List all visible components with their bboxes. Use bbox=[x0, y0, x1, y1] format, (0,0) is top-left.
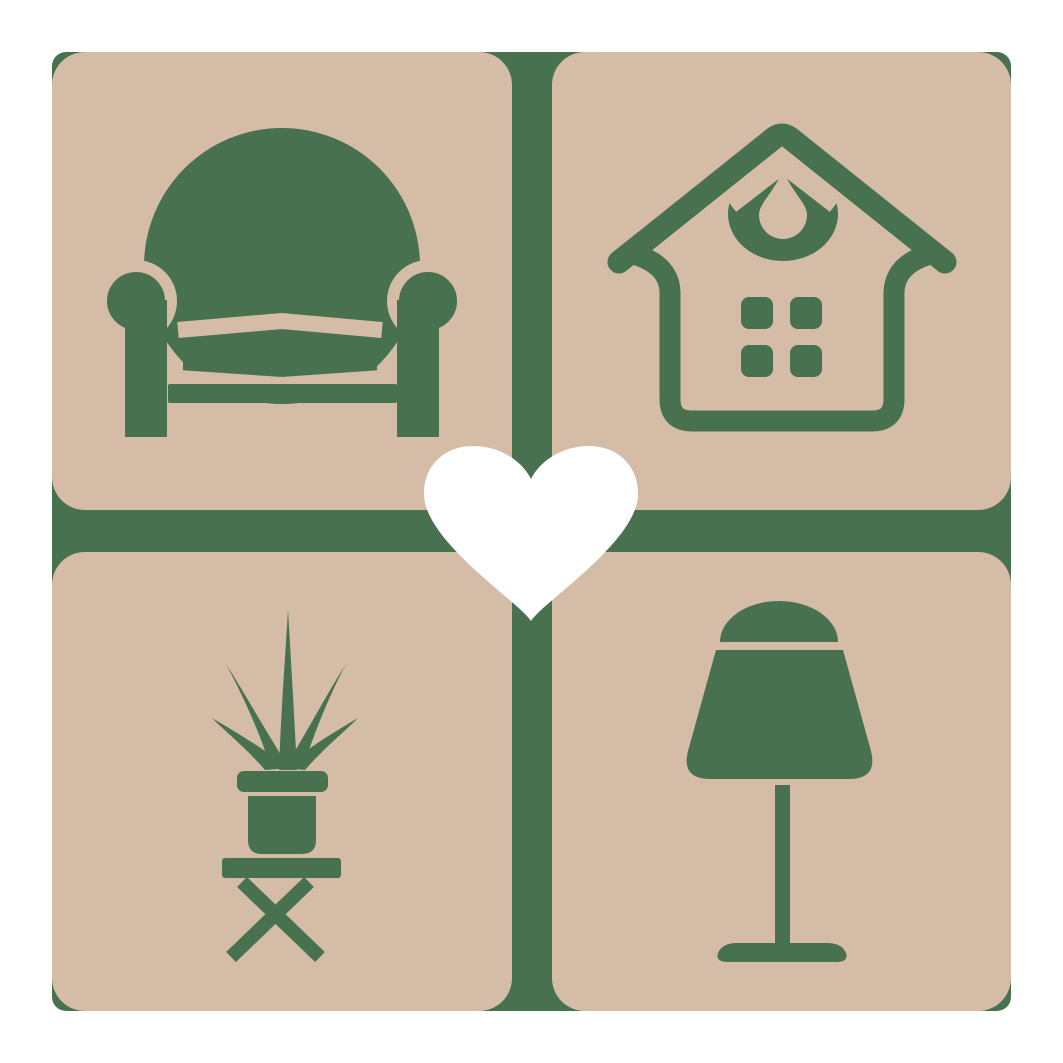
plant-pot-body bbox=[248, 796, 316, 854]
lamp-stem bbox=[775, 785, 790, 946]
chair-seat-seam-top bbox=[178, 321, 382, 330]
chair-seat-seam-bottom bbox=[178, 377, 382, 384]
logo-canvas bbox=[0, 0, 1063, 1063]
tile-house-background bbox=[552, 52, 1011, 510]
window-pane-bottom-right bbox=[790, 345, 822, 377]
window-pane-top-right bbox=[790, 297, 822, 329]
stool-top bbox=[222, 858, 341, 878]
lamp-base bbox=[717, 943, 846, 962]
chair-leg-right bbox=[397, 300, 439, 437]
chair-front-rail bbox=[168, 384, 397, 403]
window-pane-bottom-left bbox=[741, 345, 773, 377]
window-pane-top-left bbox=[741, 297, 773, 329]
tile-armchair bbox=[52, 52, 512, 510]
chair-leg-left bbox=[125, 300, 167, 437]
tile-table-lamp bbox=[552, 552, 1011, 1011]
tile-potted-plant bbox=[52, 552, 512, 1011]
lamp-shade bbox=[687, 650, 873, 779]
home-and-living-logo bbox=[0, 0, 1063, 1063]
plant-pot-rim bbox=[237, 771, 328, 792]
tile-house bbox=[552, 52, 1011, 510]
